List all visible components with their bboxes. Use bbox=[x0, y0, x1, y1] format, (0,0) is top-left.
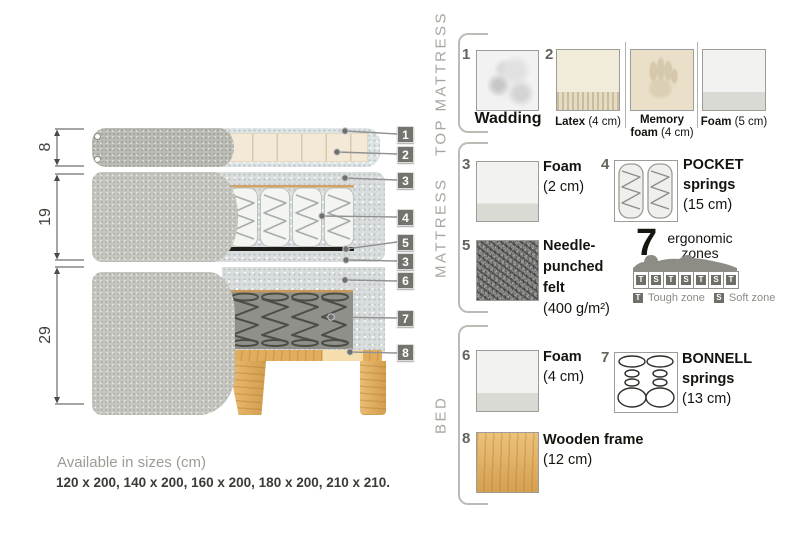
bonnell-springs-label: BONNELL springs (13 cm) bbox=[682, 349, 752, 409]
felt-thumbnail bbox=[476, 240, 539, 301]
mattress-fabric-cover bbox=[92, 172, 238, 262]
soft-zone-key: S bbox=[714, 293, 724, 303]
tufting-button bbox=[94, 156, 101, 163]
legend-num-5: 5 bbox=[462, 237, 470, 254]
section-label-bed: BED bbox=[429, 325, 453, 505]
wooden-leg-right bbox=[360, 361, 386, 415]
legend-num-6: 6 bbox=[462, 347, 470, 364]
bonnell-springs-graphic bbox=[228, 290, 353, 349]
pocket-springs-icon bbox=[615, 161, 677, 221]
legend-num-7: 7 bbox=[601, 349, 609, 366]
wood-thumbnail bbox=[476, 432, 539, 493]
zone-cell: S bbox=[679, 271, 694, 289]
available-sizes-values: 120 x 200, 140 x 200, 160 x 200, 180 x 2… bbox=[56, 475, 390, 490]
bonnell-springs-icon bbox=[615, 353, 677, 412]
zone-cell: S bbox=[709, 271, 724, 289]
pocket-springs-label: POCKET springs (15 cm) bbox=[683, 155, 743, 215]
foam4-thumbnail bbox=[476, 350, 539, 412]
wooden-frame-label: Wooden frame(12 cm) bbox=[543, 430, 643, 470]
foam4-label: Foam(4 cm) bbox=[543, 347, 584, 387]
dimension-mattress: 19 bbox=[37, 202, 53, 232]
zone-cell: T bbox=[633, 271, 649, 289]
layer-badge-3b: 3 bbox=[397, 253, 414, 270]
foam5-thumbnail bbox=[702, 49, 766, 111]
layer-badge-1: 1 bbox=[397, 126, 414, 143]
foam2-thumbnail bbox=[476, 161, 539, 222]
dimension-top-mattress: 8 bbox=[37, 132, 53, 162]
foam2-label: Foam(2 cm) bbox=[543, 157, 584, 197]
layer-badge-6: 6 bbox=[397, 272, 414, 289]
zone-cell: T bbox=[664, 271, 679, 289]
memory-foam-thumbnail bbox=[630, 49, 694, 111]
zone-key-legend: T Tough zone S Soft zone bbox=[633, 292, 775, 304]
legend-num-8: 8 bbox=[462, 430, 470, 447]
pocket-springs-thumbnail bbox=[614, 160, 678, 222]
memory-foam-caption: Memory foam (4 cm) bbox=[622, 114, 702, 140]
zone-cell: T bbox=[694, 271, 709, 289]
bonnell-springs-thumbnail bbox=[614, 352, 678, 413]
available-sizes-title: Available in sizes (cm) bbox=[57, 454, 206, 471]
pocket-springs-graphic bbox=[228, 185, 354, 251]
tough-zone-key: T bbox=[633, 293, 643, 303]
bed-fabric-cover bbox=[92, 272, 235, 415]
wooden-slat bbox=[225, 350, 382, 361]
tufting-button bbox=[94, 133, 101, 140]
legend-num-4: 4 bbox=[601, 156, 609, 173]
latex-caption: Latex (4 cm) bbox=[548, 116, 628, 129]
legend-num-2: 2 bbox=[545, 46, 553, 63]
section-label-top-mattress: TOP MATTRESS bbox=[429, 33, 453, 133]
sleeping-body-icon bbox=[633, 249, 737, 271]
zone-cell: S bbox=[649, 271, 664, 289]
bed-layers-infographic: 8 19 29 1 2 3 4 5 3 6 7 8 TOP MATTRESS M… bbox=[0, 0, 800, 533]
bed-cross-section bbox=[92, 267, 388, 415]
zone-cells: T S T S T S T bbox=[633, 271, 739, 289]
felt-label: Needle- punched felt (400 g/m²) bbox=[543, 236, 610, 320]
legend-num-3: 3 bbox=[462, 156, 470, 173]
layer-badge-2: 2 bbox=[397, 146, 414, 163]
foam5-caption: Foam (5 cm) bbox=[694, 116, 774, 129]
wadding-thumbnail bbox=[476, 50, 539, 111]
layer-badge-5: 5 bbox=[397, 234, 414, 251]
tough-zone-label: Tough zone bbox=[648, 292, 705, 304]
latex-thumbnail bbox=[556, 49, 620, 111]
top-mattress-fabric-cover bbox=[92, 128, 234, 167]
legend-num-1: 1 bbox=[462, 46, 470, 63]
section-label-mattress: MATTRESS bbox=[429, 142, 453, 313]
top-mattress-cross-section bbox=[92, 128, 380, 167]
layer-badge-3: 3 bbox=[397, 172, 414, 189]
layer-badge-7: 7 bbox=[397, 310, 414, 327]
soft-zone-label: Soft zone bbox=[729, 292, 775, 304]
dimension-bed: 29 bbox=[37, 320, 53, 350]
latex-blocks-layer bbox=[228, 133, 368, 162]
zone-cell: T bbox=[724, 271, 739, 289]
layer-badge-4: 4 bbox=[397, 209, 414, 226]
mattress-cross-section bbox=[92, 172, 385, 262]
layer-badge-8: 8 bbox=[397, 344, 414, 361]
